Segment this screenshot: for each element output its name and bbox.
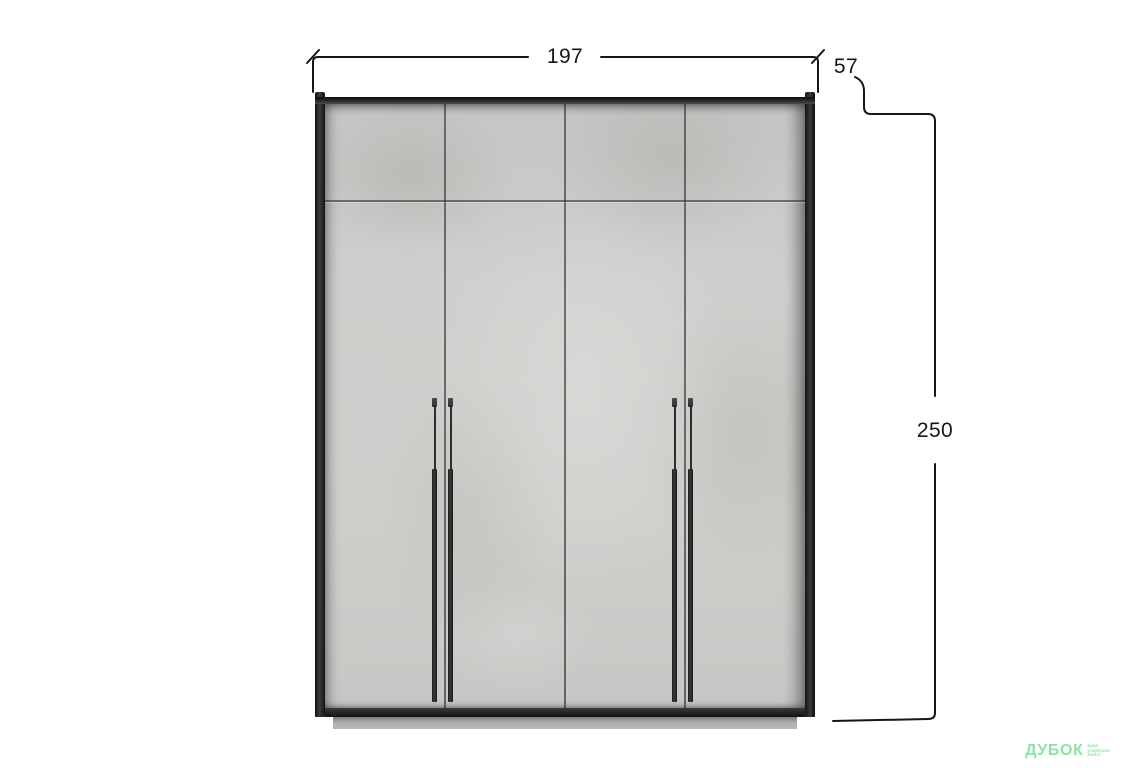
width-dim-line-left: [313, 57, 528, 92]
width-dim-line-right: [601, 57, 818, 92]
width-dimension-label: 197: [531, 45, 599, 69]
depth-dimension-label: 57: [828, 55, 864, 79]
product-dimension-diagram: 197 57 250 ДУБОК ваші улюблені меблі: [0, 0, 1130, 773]
depth-leader-line: [855, 77, 935, 396]
brand-tagline: ваші улюблені меблі: [1087, 744, 1110, 759]
brand-logo-text: ДУБОК: [1025, 742, 1083, 760]
height-dim-line-lower: [833, 464, 935, 721]
brand-tagline-line: меблі: [1087, 753, 1110, 758]
dimension-lines: [0, 0, 1130, 773]
brand-watermark: ДУБОК ваші улюблені меблі: [1025, 742, 1110, 760]
height-dimension-label: 250: [901, 419, 969, 443]
